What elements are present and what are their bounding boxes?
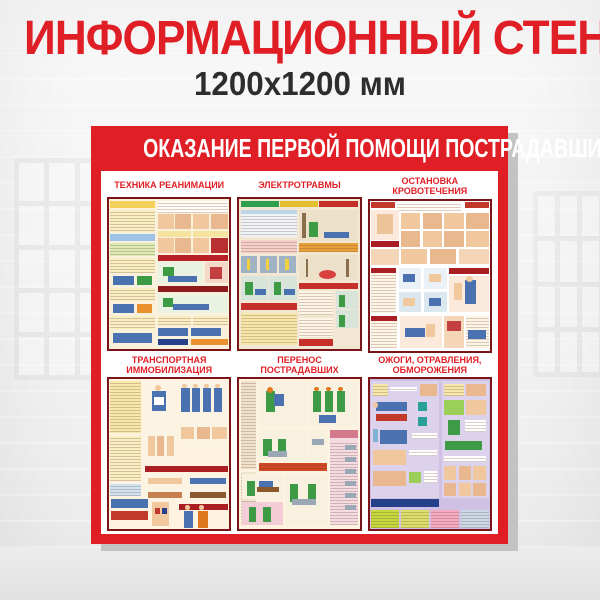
illustration-block <box>197 427 210 439</box>
illustration-block <box>345 493 356 498</box>
floor <box>0 548 600 600</box>
illustration-block <box>401 249 427 264</box>
illustration-block <box>373 384 387 396</box>
illustration-block <box>376 414 407 422</box>
illustration-block <box>257 487 279 492</box>
illustration-block <box>110 484 141 496</box>
illustration-block <box>137 276 153 285</box>
illustration-block <box>184 511 194 528</box>
illustration-block <box>345 505 356 510</box>
illustration-block <box>345 469 356 474</box>
illustration-block <box>444 213 463 230</box>
illustration-block <box>459 249 489 264</box>
illustration-block <box>299 339 333 347</box>
illustration-block <box>211 238 228 253</box>
illustration-block <box>241 214 298 237</box>
illustration-block <box>449 268 489 274</box>
illustration-block <box>447 321 461 332</box>
illustration-block <box>418 417 428 426</box>
illustration-block <box>168 276 197 282</box>
illustration-block <box>339 315 345 327</box>
illustration-block <box>465 420 487 432</box>
illustration-block <box>444 456 486 462</box>
illustration-block <box>373 402 378 408</box>
illustration-block <box>158 231 190 237</box>
illustration-block <box>345 445 356 450</box>
illustration-block <box>274 282 281 296</box>
illustration-block <box>110 436 141 481</box>
illustration-block <box>420 384 437 396</box>
illustration-block <box>158 286 228 292</box>
illustration-block <box>444 483 456 497</box>
illustration-block <box>412 433 437 439</box>
illustration-block <box>448 420 460 435</box>
illustration-block <box>473 466 486 480</box>
illustration-block <box>211 214 228 229</box>
illustration-block <box>423 231 442 248</box>
illustration-block <box>459 466 471 480</box>
illustration-block <box>193 214 209 229</box>
illustration-block <box>113 333 153 344</box>
illustration-block <box>110 201 155 209</box>
illustration-block <box>444 466 456 480</box>
illustration-block <box>459 483 471 497</box>
illustration-block <box>299 318 333 338</box>
poster-burns: ОЖОГИ, ОТРАВЛЕНИЯ, ОБМОРОЖЕНИЯ <box>368 353 492 532</box>
illustration-block <box>319 201 359 207</box>
illustration-block <box>431 510 459 528</box>
illustration-block <box>302 213 306 239</box>
illustration-block <box>371 499 440 507</box>
illustration-block <box>426 324 434 338</box>
illustration-block <box>167 436 174 456</box>
illustration-block <box>259 463 328 471</box>
illustration-block <box>424 471 437 483</box>
stand-title: ОКАЗАНИЕ ПЕРВОЙ ПОМОЩИ ПОСТРАДАВШИМ <box>143 126 456 171</box>
illustration-block <box>241 240 298 254</box>
illustration-block <box>110 288 155 302</box>
illustration-block <box>163 267 174 276</box>
illustration-block <box>371 321 397 348</box>
poster-carrying: ПЕРЕНОС ПОСТРАДАВШИХ <box>237 353 361 532</box>
illustration-block <box>148 478 183 484</box>
illustration-block <box>158 339 188 345</box>
illustration-block <box>371 241 399 247</box>
illustration-block <box>401 231 420 248</box>
illustration-block <box>181 427 194 439</box>
panel-illustration-bleeding <box>368 199 492 353</box>
illustration-block <box>345 457 356 462</box>
illustration-block <box>215 384 220 389</box>
panel-title: ПЕРЕНОС ПОСТРАДАВШИХ <box>237 353 361 378</box>
illustration-block <box>445 441 481 450</box>
illustration-block <box>263 507 270 522</box>
illustration-block <box>255 289 266 295</box>
illustration-block <box>191 339 228 345</box>
illustration-block <box>339 295 345 307</box>
illustration-block <box>158 328 188 336</box>
illustration-block <box>158 214 174 229</box>
poster-bleeding: ОСТАНОВКА КРОВОТЕЧЕНИЯ <box>368 174 492 353</box>
illustration-block <box>423 213 442 230</box>
poster-immobilization: ТРАНСПОРТНАЯ ИММОБИЛИЗАЦИЯ <box>107 353 231 532</box>
illustration-block <box>429 274 441 282</box>
illustration-block <box>193 238 209 253</box>
illustration-block <box>313 391 321 412</box>
illustration-block <box>111 511 147 520</box>
illustration-block <box>309 222 317 237</box>
illustration-block <box>319 270 336 279</box>
illustration-block <box>198 511 208 528</box>
illustration-block <box>110 316 155 330</box>
illustration-block <box>148 436 155 456</box>
illustration-block <box>371 273 396 314</box>
illustration-block <box>158 238 174 253</box>
panel-title: ОСТАНОВКА КРОВОТЕЧЕНИЯ <box>368 174 492 199</box>
illustration-block <box>324 232 349 238</box>
illustration-block <box>397 202 461 211</box>
illustration-block <box>110 234 155 242</box>
illustration-block <box>274 394 284 406</box>
illustration-block <box>110 210 155 233</box>
illustration-block <box>110 243 155 257</box>
panel-illustration-burns <box>368 377 492 531</box>
illustration-block <box>154 397 165 405</box>
illustration-block <box>461 510 489 528</box>
illustration-block <box>371 510 399 528</box>
illustration-block <box>337 391 345 412</box>
illustration-block <box>192 388 200 412</box>
poster-reanimation: ТЕХНИКА РЕАНИМАЦИИ <box>107 174 231 353</box>
illustration-block <box>345 481 356 486</box>
illustration-block <box>241 313 298 345</box>
illustration-block <box>214 388 222 412</box>
banner: ИНФОРМАЦИОННЫЙ СТЕНД 1200x1200 мм <box>0 14 600 102</box>
illustration-block <box>267 387 273 393</box>
illustration-block <box>191 328 221 336</box>
illustration-block <box>190 492 226 498</box>
illustration-block <box>203 388 211 412</box>
illustration-block <box>430 249 456 264</box>
illustration-block <box>137 304 153 313</box>
illustration-block <box>444 400 463 415</box>
illustration-block <box>377 214 393 234</box>
illustration-block <box>466 276 473 282</box>
illustration-block <box>380 430 406 444</box>
illustration-block <box>285 259 289 270</box>
illustration-block <box>241 303 298 311</box>
illustration-block <box>306 259 308 277</box>
illustration-block <box>266 259 270 270</box>
panel-illustration-immobilization <box>107 377 231 531</box>
illustration-block <box>242 502 283 525</box>
information-stand: ОКАЗАНИЕ ПЕРВОЙ ПОМОЩИ ПОСТРАДАВШИМ ТЕХН… <box>91 126 508 544</box>
illustration-block <box>473 483 486 497</box>
illustration-block <box>299 243 358 252</box>
illustration-block <box>466 400 486 415</box>
illustration-block <box>465 280 476 304</box>
illustration-block <box>175 214 191 229</box>
product-image: ИНФОРМАЦИОННЫЙ СТЕНД 1200x1200 мм ОКАЗАН… <box>0 0 600 600</box>
illustration-block <box>113 276 135 285</box>
illustration-block <box>454 283 462 300</box>
illustration-block <box>284 289 295 295</box>
illustration-block <box>314 387 319 392</box>
illustration-block <box>330 430 359 438</box>
illustration-block <box>442 381 489 498</box>
illustration-block <box>210 267 222 279</box>
illustration-block <box>145 466 228 472</box>
background-window-right <box>533 191 600 377</box>
illustration-block <box>468 330 486 339</box>
illustration-block <box>162 508 167 514</box>
illustration-block <box>371 249 399 266</box>
banner-title: ИНФОРМАЦИОННЫЙ СТЕНД <box>24 14 576 64</box>
illustration-block <box>268 451 287 457</box>
illustration-block <box>373 471 405 486</box>
illustration-block <box>401 213 420 230</box>
panel-title: ТРАНСПОРТНАЯ ИММОБИЛИЗАЦИЯ <box>107 353 231 378</box>
illustration-block <box>245 282 252 296</box>
illustration-block <box>181 388 189 412</box>
panel-title: ЭЛЕКТРОТРАВМЫ <box>237 174 361 197</box>
illustration-block <box>185 505 190 510</box>
illustration-block <box>241 381 257 470</box>
illustration-block <box>465 202 489 208</box>
illustration-block <box>346 259 348 277</box>
illustration-block <box>152 502 169 526</box>
illustration-block <box>199 505 204 510</box>
banner-subtitle: 1200x1200 мм <box>15 66 585 102</box>
illustration-block <box>409 450 437 456</box>
illustration-block <box>299 291 333 315</box>
poster-electro: ЭЛЕКТРОТРАВМЫ <box>237 174 361 353</box>
panel-illustration-carrying <box>237 377 361 531</box>
illustration-block <box>249 507 256 522</box>
illustration-block <box>193 316 228 325</box>
illustration-block <box>308 430 327 460</box>
illustration-block <box>247 259 251 270</box>
illustration-block <box>113 304 135 313</box>
illustration-block <box>466 384 486 396</box>
illustration-block <box>325 391 333 412</box>
illustration-block <box>158 316 190 325</box>
illustration-block <box>444 384 463 396</box>
illustration-block <box>429 298 441 306</box>
illustration-block <box>190 478 226 484</box>
illustration-block <box>403 298 415 306</box>
illustration-block <box>193 231 228 237</box>
illustration-block <box>259 481 273 487</box>
illustration-block <box>292 499 316 505</box>
illustration-block <box>466 213 489 230</box>
illustration-block <box>247 481 255 496</box>
illustration-block <box>409 472 421 483</box>
illustration-block <box>319 415 336 423</box>
illustration-block <box>403 274 415 282</box>
illustration-block <box>158 255 228 261</box>
panel-title: ОЖОГИ, ОТРАВЛЕНИЯ, ОБМОРОЖЕНИЯ <box>368 353 492 378</box>
illustration-block <box>110 258 155 273</box>
illustration-block <box>312 439 324 445</box>
illustration-block <box>418 402 428 411</box>
illustration-block <box>299 283 358 289</box>
illustration-block <box>148 492 183 498</box>
illustration-block <box>390 387 416 392</box>
illustration-block <box>212 427 226 439</box>
illustration-block <box>241 201 280 207</box>
illustration-block <box>110 381 141 434</box>
illustration-block <box>373 429 378 443</box>
illustration-block <box>158 201 228 213</box>
illustration-block <box>466 231 489 248</box>
stand-body: ТЕХНИКА РЕАНИМАЦИИ ЭЛЕКТРОТРАВМЫ ОСТАНОВ… <box>101 171 498 534</box>
illustration-block <box>401 510 429 528</box>
illustration-block <box>175 238 191 253</box>
illustration-block <box>157 436 164 456</box>
illustration-block <box>173 304 209 310</box>
illustration-block <box>111 499 147 508</box>
panel-illustration-reanimation <box>107 197 231 351</box>
illustration-block <box>155 508 160 514</box>
illustration-block <box>373 450 405 465</box>
panel-illustration-electro <box>237 197 361 351</box>
illustration-block <box>371 202 395 208</box>
illustration-block <box>163 298 173 307</box>
illustration-block <box>280 201 317 207</box>
panel-title: ТЕХНИКА РЕАНИМАЦИИ <box>107 174 231 197</box>
illustration-block <box>444 231 463 248</box>
illustration-block <box>376 402 407 411</box>
illustration-block <box>405 328 425 337</box>
